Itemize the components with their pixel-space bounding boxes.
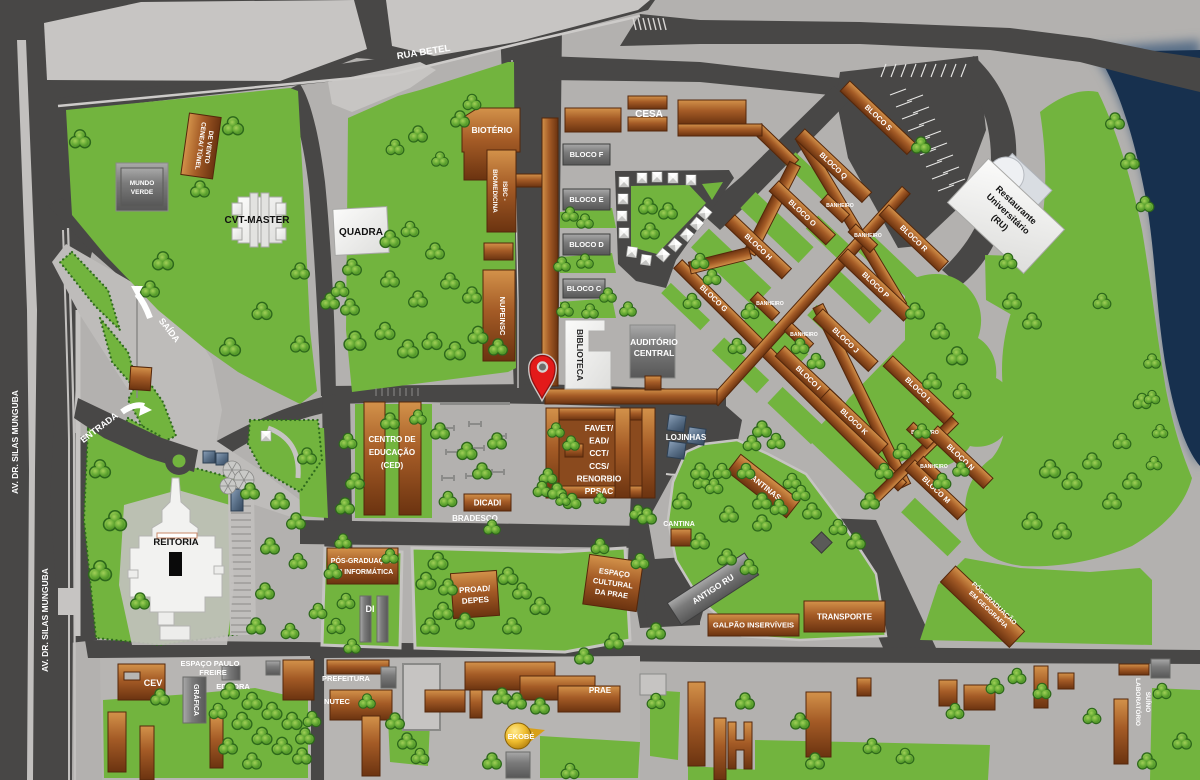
svg-text:ISBC -: ISBC -	[501, 181, 508, 201]
svg-text:PRAE: PRAE	[589, 686, 612, 695]
svg-text:CENTRAL: CENTRAL	[634, 348, 675, 358]
svg-text:BLOCO C: BLOCO C	[567, 284, 602, 293]
svg-text:RENORBIO: RENORBIO	[577, 473, 622, 483]
svg-text:CENTRO DE: CENTRO DE	[368, 435, 416, 444]
svg-text:ESPAÇO PAULO: ESPAÇO PAULO	[181, 659, 240, 668]
svg-text:(CED): (CED)	[381, 461, 404, 470]
svg-text:REITORIA: REITORIA	[153, 537, 198, 548]
svg-text:NUTEC: NUTEC	[324, 697, 350, 706]
svg-text:BANHEIRO: BANHEIRO	[920, 464, 948, 470]
svg-text:BANHEIRO: BANHEIRO	[854, 233, 882, 239]
svg-text:BANHEIRO: BANHEIRO	[790, 332, 818, 338]
svg-text:CANTINA: CANTINA	[663, 521, 695, 528]
svg-text:EAD/: EAD/	[589, 436, 610, 446]
svg-text:DI: DI	[366, 604, 375, 614]
svg-text:NUPEINSC: NUPEINSC	[498, 297, 507, 336]
svg-text:AUDITÓRIO: AUDITÓRIO	[630, 336, 678, 347]
svg-text:FREIRE: FREIRE	[199, 668, 227, 677]
svg-text:BIOTÉRIO: BIOTÉRIO	[471, 125, 512, 135]
svg-text:FAVET/: FAVET/	[585, 423, 614, 433]
svg-text:DICADI: DICADI	[474, 498, 502, 507]
svg-text:CCS/: CCS/	[589, 461, 610, 471]
svg-text:EDUCAÇÃO: EDUCAÇÃO	[369, 448, 415, 457]
svg-text:MUNDO: MUNDO	[130, 180, 155, 187]
svg-text:BIOMEDICINA: BIOMEDICINA	[491, 169, 498, 213]
svg-text:DEPES: DEPES	[462, 595, 490, 606]
svg-text:AV. DR. SILAS MUNGUBA: AV. DR. SILAS MUNGUBA	[40, 568, 50, 672]
svg-text:PREFEITURA: PREFEITURA	[322, 674, 371, 683]
svg-text:GALPÃO INSERVÍVEIS: GALPÃO INSERVÍVEIS	[713, 621, 794, 630]
svg-text:LABORATÓRIO: LABORATÓRIO	[1134, 678, 1143, 726]
svg-text:BANHEIRO: BANHEIRO	[826, 203, 854, 209]
svg-text:BANHEIRO: BANHEIRO	[756, 301, 784, 307]
svg-text:BIBLIOTECA: BIBLIOTECA	[575, 329, 585, 381]
svg-text:CVT-MASTER: CVT-MASTER	[225, 215, 291, 226]
svg-text:SUÍNO: SUÍNO	[1144, 692, 1153, 713]
svg-text:VERDE: VERDE	[131, 189, 154, 196]
svg-text:CCT/: CCT/	[589, 448, 609, 458]
svg-text:QUADRA: QUADRA	[339, 227, 383, 238]
svg-text:BLOCO F: BLOCO F	[570, 150, 604, 159]
svg-text:LOJINHAS: LOJINHAS	[666, 433, 707, 442]
svg-text:GRÁFICA: GRÁFICA	[192, 684, 201, 716]
svg-text:CESA: CESA	[635, 109, 663, 120]
svg-text:AV. DR. SILAS MUNGUBA: AV. DR. SILAS MUNGUBA	[10, 390, 20, 494]
svg-text:EKOBÉ: EKOBÉ	[508, 732, 535, 741]
svg-text:BLOCO E: BLOCO E	[569, 195, 603, 204]
svg-text:TRANSPORTE: TRANSPORTE	[817, 612, 873, 621]
svg-text:CEV: CEV	[144, 678, 163, 688]
svg-text:BLOCO D: BLOCO D	[569, 240, 604, 249]
